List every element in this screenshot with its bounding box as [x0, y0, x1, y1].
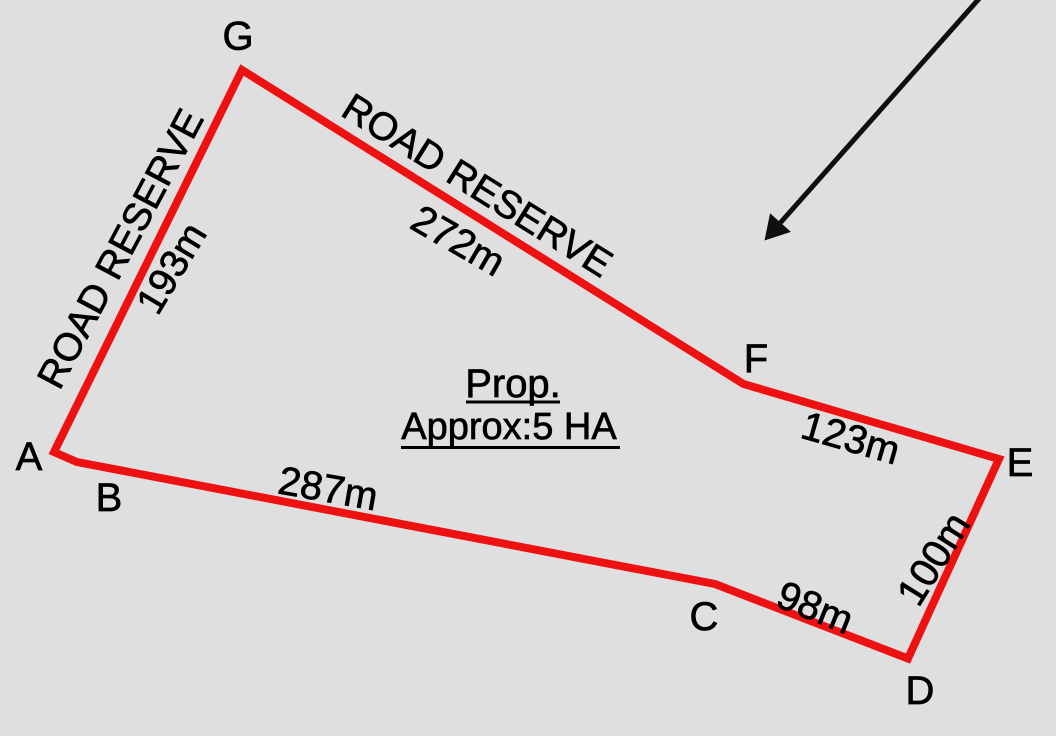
svg-text:C: C: [690, 595, 719, 639]
svg-text:A: A: [16, 435, 43, 479]
svg-text:Prop.: Prop.: [465, 362, 561, 406]
svg-text:G: G: [222, 15, 253, 59]
svg-text:B: B: [96, 476, 123, 520]
svg-text:E: E: [1007, 441, 1034, 485]
svg-text:F: F: [744, 337, 768, 381]
svg-text:D: D: [906, 669, 935, 713]
svg-text:Approx:5 HA: Approx:5 HA: [401, 406, 617, 448]
